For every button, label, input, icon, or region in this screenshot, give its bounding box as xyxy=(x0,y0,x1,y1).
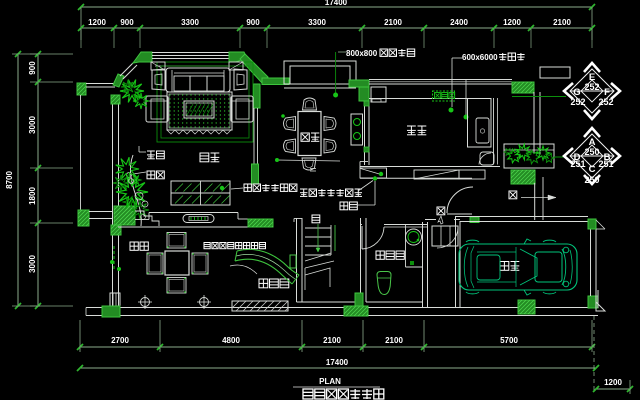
svg-text:1200: 1200 xyxy=(604,378,622,387)
svg-text:1200: 1200 xyxy=(88,18,106,27)
svg-text:1800: 1800 xyxy=(28,187,37,205)
svg-text:5700: 5700 xyxy=(500,336,518,345)
svg-text:900: 900 xyxy=(28,61,37,75)
svg-text:4800: 4800 xyxy=(222,336,240,345)
svg-text:3000: 3000 xyxy=(28,116,37,134)
svg-text:8700: 8700 xyxy=(5,171,14,189)
svg-text:252: 252 xyxy=(598,97,613,107)
svg-text:3000: 3000 xyxy=(28,255,37,273)
svg-text:2700: 2700 xyxy=(111,336,129,345)
svg-text:252: 252 xyxy=(584,82,599,92)
svg-text:17400: 17400 xyxy=(325,0,348,7)
svg-text:900: 900 xyxy=(246,18,260,27)
svg-text:PLAN: PLAN xyxy=(319,377,341,386)
svg-text:250: 250 xyxy=(584,147,599,157)
svg-text:2100: 2100 xyxy=(385,336,403,345)
svg-text:900: 900 xyxy=(120,18,134,27)
svg-text:252: 252 xyxy=(570,97,585,107)
svg-text:3300: 3300 xyxy=(181,18,199,27)
svg-text:2400: 2400 xyxy=(450,18,468,27)
svg-text:C: C xyxy=(589,164,596,175)
svg-text:250: 250 xyxy=(584,175,599,185)
svg-text:3300: 3300 xyxy=(308,18,326,27)
svg-text:2100: 2100 xyxy=(553,18,571,27)
svg-text:2100: 2100 xyxy=(323,336,341,345)
svg-text:800x800: 800x800 xyxy=(346,49,378,58)
svg-text:600x6000: 600x6000 xyxy=(462,53,498,62)
svg-text:251: 251 xyxy=(598,159,613,169)
svg-text:251: 251 xyxy=(570,159,585,169)
svg-text:17400: 17400 xyxy=(326,358,349,367)
svg-text:1200: 1200 xyxy=(503,18,521,27)
svg-text:2100: 2100 xyxy=(384,18,402,27)
